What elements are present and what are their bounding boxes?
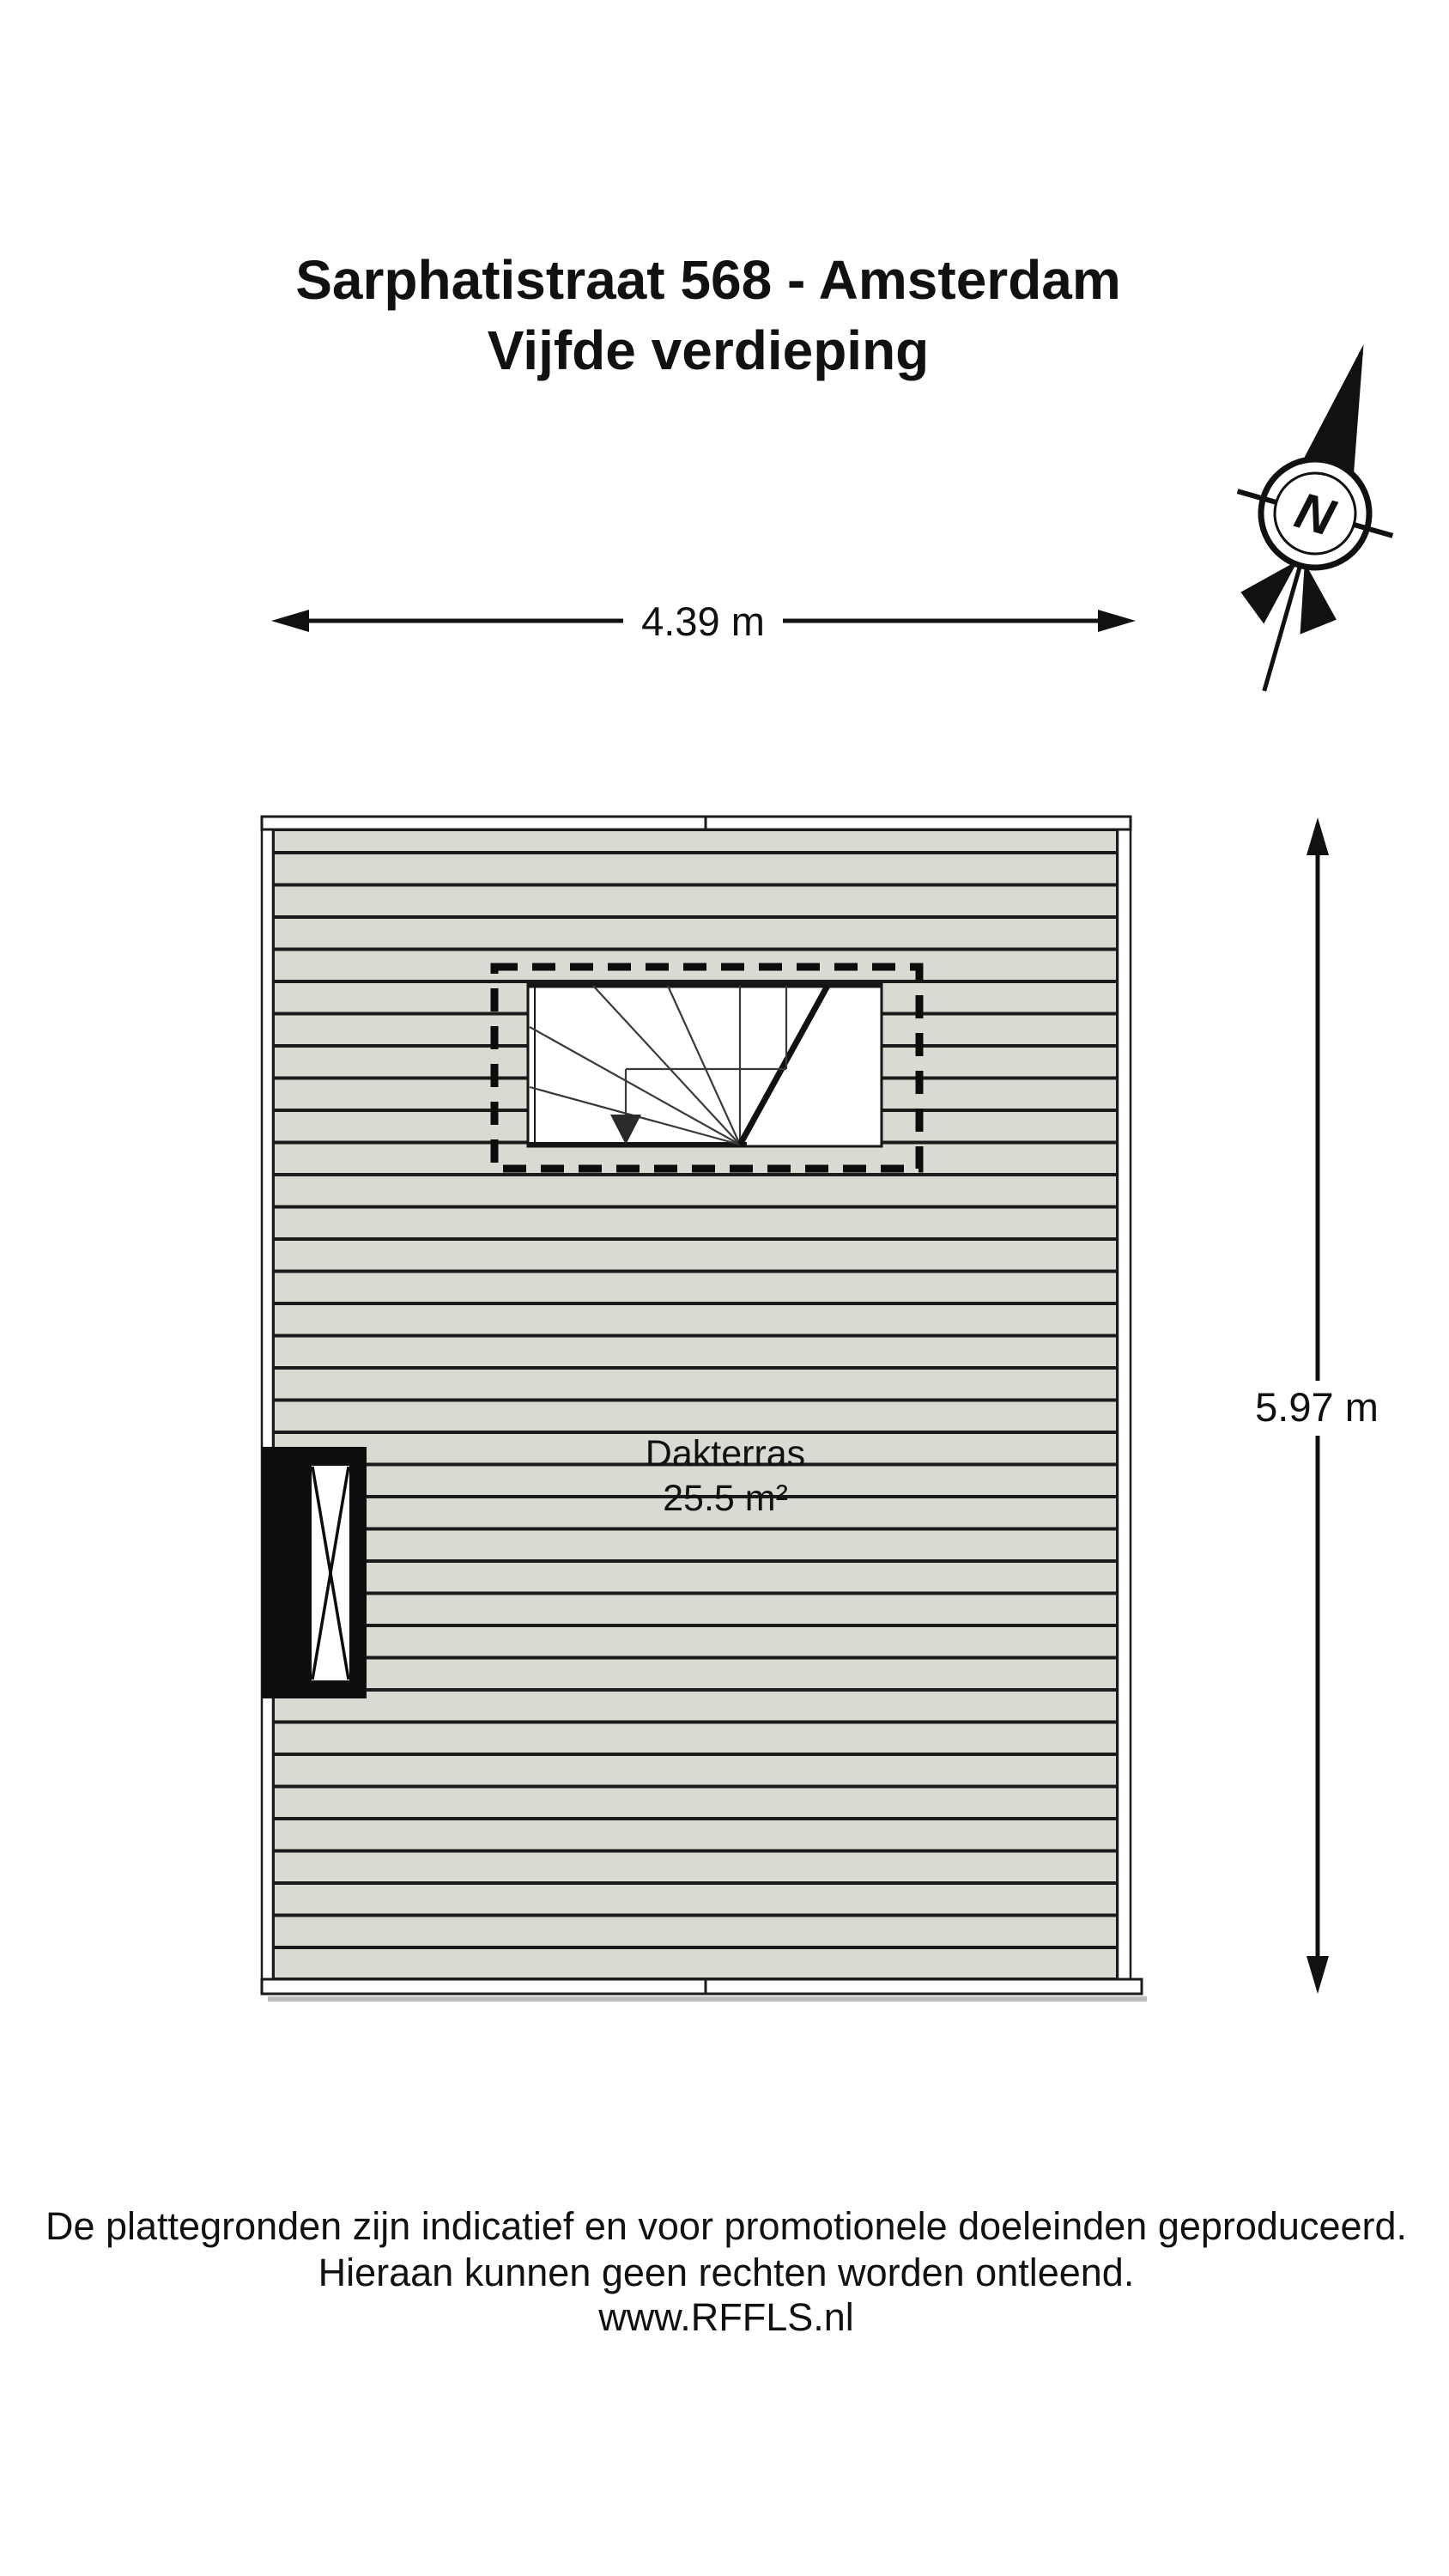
page-title-line1: Sarphatistraat 568 - Amsterdam [295, 249, 1121, 311]
wall-left [262, 829, 273, 1979]
disclaimer-line1: De plattegronden zijn indicatief en voor… [45, 2204, 1407, 2248]
disclaimer-line2: Hieraan kunnen geen rechten worden ontle… [318, 2251, 1135, 2294]
floorplan-page: Sarphatistraat 568 - Amsterdam Vijfde ve… [0, 0, 1449, 2576]
width-dimension-arrow-left [271, 610, 309, 632]
compass-south-wing-right [1285, 562, 1349, 643]
floor-plan: Dakterras 25.5 m² [262, 817, 1147, 1999]
disclaimer: De plattegronden zijn indicatief en voor… [45, 2204, 1407, 2339]
height-dimension-arrow-bottom [1307, 1956, 1329, 1994]
wall-bottom [262, 1979, 1142, 1994]
wall-right [1118, 829, 1131, 1979]
height-dimension-arrow-top [1307, 817, 1329, 855]
website-label: www.RFFLS.nl [597, 2295, 854, 2339]
width-dimension-arrow-right [1098, 610, 1136, 632]
wall-top [262, 817, 1131, 829]
room-area-label: 25.5 m² [663, 1478, 788, 1519]
room-name-label: Dakterras [646, 1433, 805, 1474]
north-arrow-icon: N [1186, 322, 1440, 714]
chimney [262, 1447, 367, 1698]
stairwell [494, 967, 919, 1169]
height-dimension-label: 5.97 m [1255, 1384, 1379, 1430]
page-title: Sarphatistraat 568 - Amsterdam Vijfde ve… [295, 249, 1121, 381]
width-dimension-label: 4.39 m [641, 598, 765, 644]
height-dimension: 5.97 m [1255, 817, 1379, 1994]
page-title-line2: Vijfde verdieping [488, 319, 930, 381]
width-dimension: 4.39 m [271, 598, 1136, 644]
